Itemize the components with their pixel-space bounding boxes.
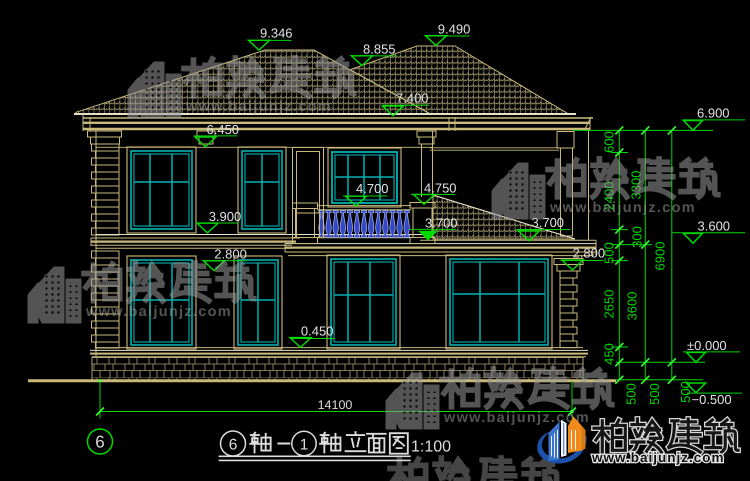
svg-text:3.600: 3.600 xyxy=(698,219,731,234)
svg-text:www.baijunjz.com: www.baijunjz.com xyxy=(591,450,725,465)
svg-text:300: 300 xyxy=(630,226,645,248)
svg-text:4.750: 4.750 xyxy=(424,181,457,196)
svg-text:500: 500 xyxy=(624,383,639,405)
svg-text:4.700: 4.700 xyxy=(356,181,389,196)
svg-text:450: 450 xyxy=(602,343,617,365)
svg-text:9.346: 9.346 xyxy=(260,26,293,41)
svg-text:2.800: 2.800 xyxy=(573,246,606,261)
svg-text:1:100: 1:100 xyxy=(411,439,451,456)
svg-text:2650: 2650 xyxy=(602,290,617,319)
svg-text:6900: 6900 xyxy=(653,242,668,271)
svg-text:6: 6 xyxy=(95,433,104,452)
svg-text:14100: 14100 xyxy=(318,398,353,412)
svg-text:2.800: 2.800 xyxy=(214,246,247,261)
svg-text:500: 500 xyxy=(678,381,693,403)
svg-text:1: 1 xyxy=(300,437,309,454)
svg-text:9.490: 9.490 xyxy=(438,22,471,37)
svg-text:7.400: 7.400 xyxy=(396,91,429,106)
svg-text:500: 500 xyxy=(647,383,662,405)
svg-text:3.900: 3.900 xyxy=(209,209,242,224)
svg-text:6: 6 xyxy=(229,437,238,454)
svg-text:500: 500 xyxy=(602,242,617,264)
svg-text:600: 600 xyxy=(602,131,617,153)
svg-text:6.900: 6.900 xyxy=(697,106,730,121)
svg-text:±0.000: ±0.000 xyxy=(687,338,727,353)
svg-text:6.450: 6.450 xyxy=(207,122,240,137)
svg-text:3600: 3600 xyxy=(625,292,640,321)
svg-text:0.450: 0.450 xyxy=(301,323,334,338)
svg-text:−0.500: −0.500 xyxy=(692,392,732,407)
svg-text:8.855: 8.855 xyxy=(363,41,396,56)
svg-text:3.700: 3.700 xyxy=(425,215,458,230)
